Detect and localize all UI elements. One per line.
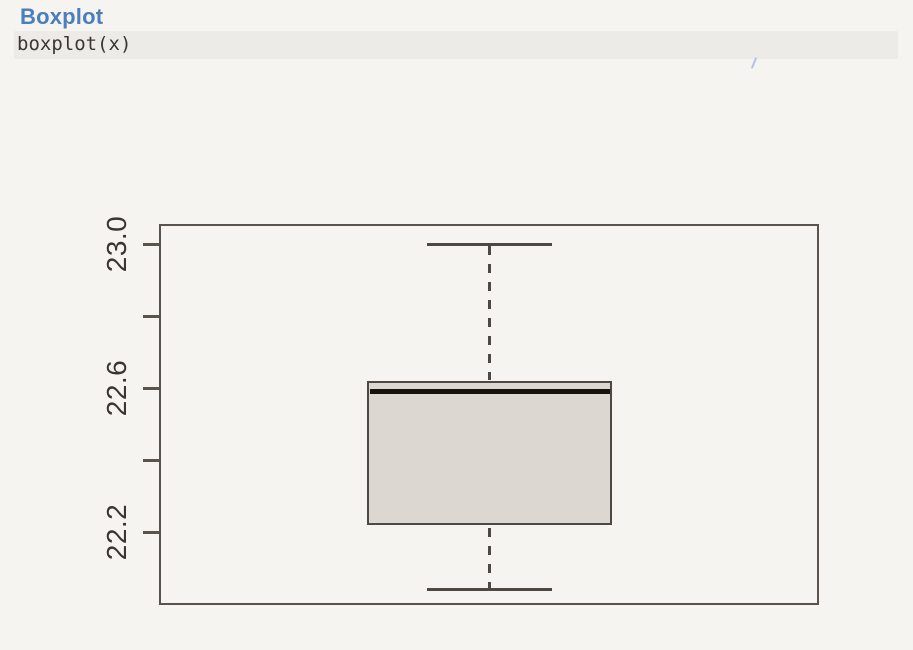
iqr-box (367, 381, 612, 525)
boxplot-figure: 23.022.622.2 (0, 0, 913, 650)
median-line (370, 389, 610, 394)
lower-whisker-cap (427, 588, 552, 591)
y-axis-tick (143, 243, 159, 246)
y-axis-tick-label: 22.2 (101, 504, 133, 561)
document-page: Boxplot boxplot(x) 23.022.622.2 (0, 0, 913, 650)
y-axis-tick (143, 459, 159, 462)
upper-whisker-line (488, 246, 491, 380)
y-axis-tick (143, 531, 159, 534)
upper-whisker-cap (427, 243, 552, 246)
y-axis-tick (143, 387, 159, 390)
y-axis-tick-label: 23.0 (101, 216, 133, 273)
y-axis-tick-label: 22.6 (101, 360, 133, 417)
y-axis-tick (143, 315, 159, 318)
lower-whisker-line (488, 528, 491, 588)
